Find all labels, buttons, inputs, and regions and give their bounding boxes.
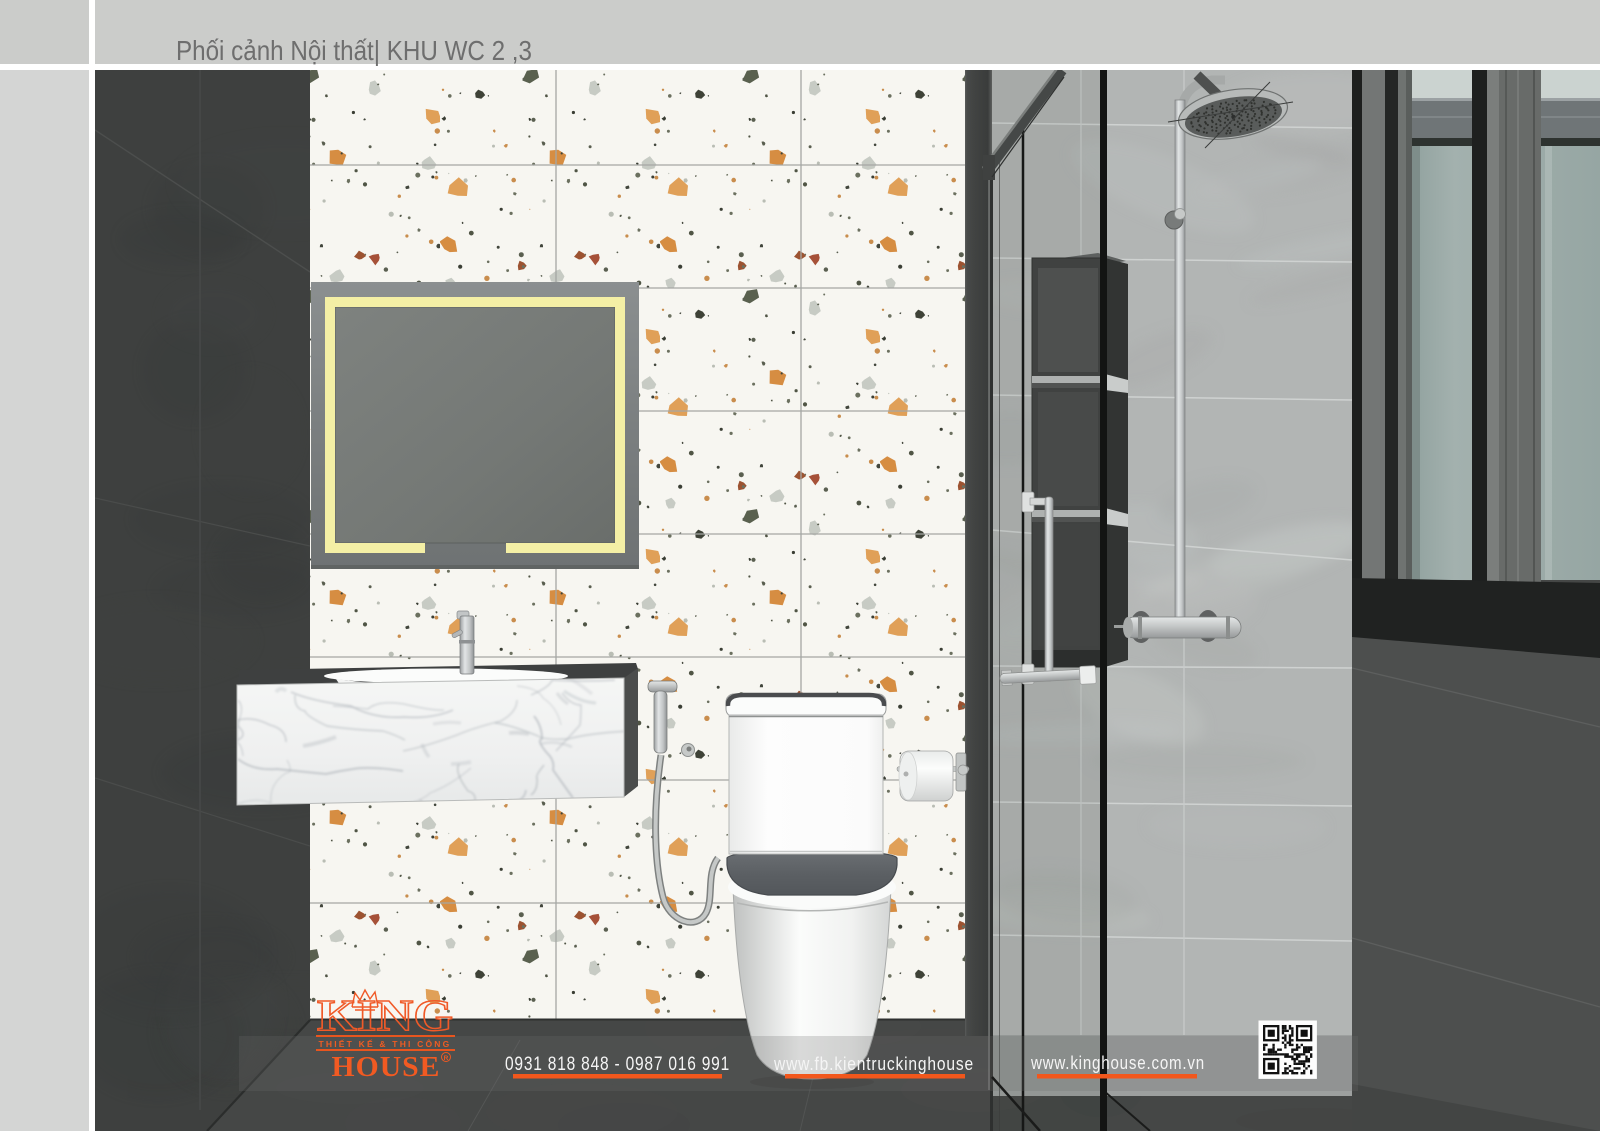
svg-text:HOUSE: HOUSE [332,1051,441,1083]
svg-text:KING: KING [317,991,453,1040]
svg-text:www.kinghouse.com.vn: www.kinghouse.com.vn [1030,1052,1205,1073]
svg-text:R: R [444,1055,449,1062]
svg-text:Phối cảnh Nội thất| KHU WC 2 ,: Phối cảnh Nội thất| KHU WC 2 ,3 [176,35,532,66]
svg-text:0931 818 848 - 0987 016 991: 0931 818 848 - 0987 016 991 [505,1053,730,1075]
svg-text:THIẾT KẾ & THI CÔNG: THIẾT KẾ & THI CÔNG [319,1038,452,1049]
svg-text:www.fb.kientruckinghouse: www.fb.kientruckinghouse [773,1053,974,1074]
